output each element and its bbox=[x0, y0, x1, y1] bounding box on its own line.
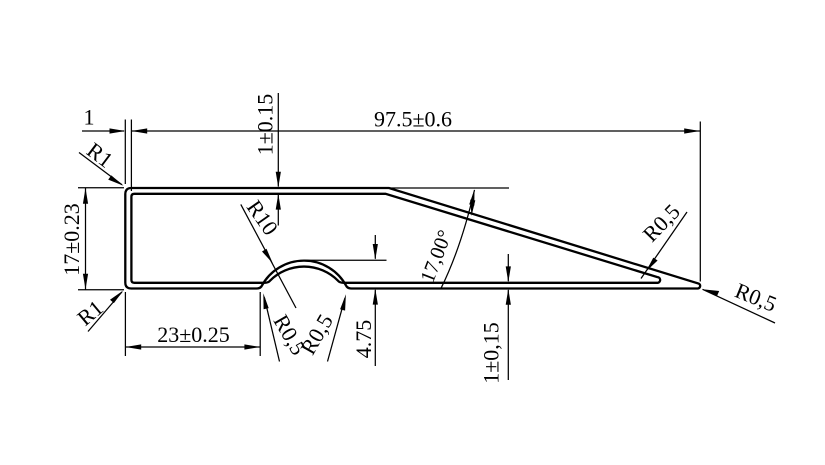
svg-text:4.75: 4.75 bbox=[351, 320, 376, 359]
svg-text:1±0,15: 1±0,15 bbox=[479, 322, 504, 384]
svg-text:1: 1 bbox=[84, 105, 95, 130]
svg-text:R0,5: R0,5 bbox=[638, 199, 685, 247]
svg-text:1±0.15: 1±0.15 bbox=[253, 94, 278, 156]
svg-text:17,00°: 17,00° bbox=[417, 227, 457, 286]
svg-text:R0,5: R0,5 bbox=[732, 278, 780, 317]
svg-text:23±0.25: 23±0.25 bbox=[157, 322, 230, 347]
svg-text:97.5±0.6: 97.5±0.6 bbox=[374, 107, 452, 132]
svg-text:R1: R1 bbox=[72, 295, 108, 331]
svg-text:17±0.23: 17±0.23 bbox=[59, 203, 84, 276]
svg-text:R1: R1 bbox=[82, 137, 118, 172]
